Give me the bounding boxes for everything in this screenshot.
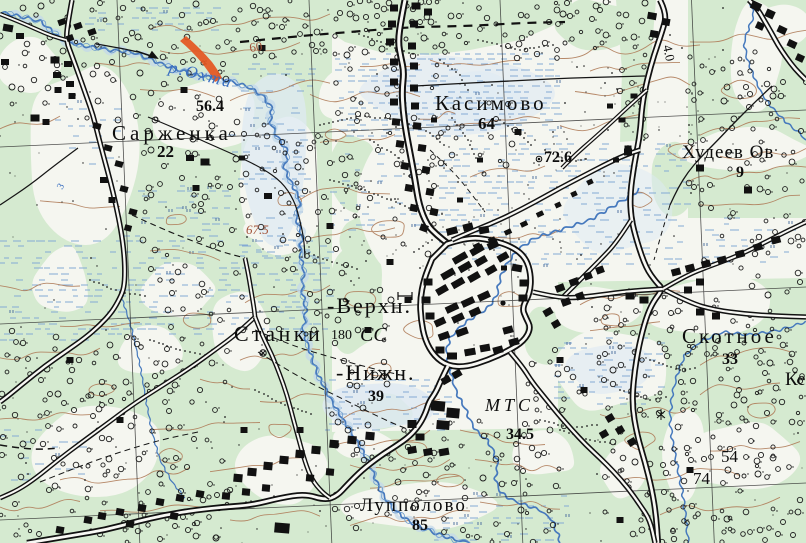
svg-text:64: 64 <box>478 114 496 133</box>
svg-text:Худеев Ов: Худеев Ов <box>682 142 774 163</box>
svg-text:-Верхн.: -Верхн. <box>327 293 412 318</box>
svg-text:85: 85 <box>412 517 428 534</box>
svg-text:МТС: МТС <box>484 395 534 415</box>
svg-text:Ке: Ке <box>785 369 805 390</box>
svg-text:67.5: 67.5 <box>246 222 269 237</box>
svg-text:Станки: Станки <box>234 321 323 346</box>
svg-text:54: 54 <box>721 447 739 466</box>
svg-text:33: 33 <box>722 351 738 368</box>
svg-text:60: 60 <box>248 38 263 55</box>
svg-text:Лупполово: Лупполово <box>360 495 467 516</box>
svg-text:Касимово: Касимово <box>435 91 547 115</box>
svg-text:9: 9 <box>736 164 744 181</box>
svg-text:56.4: 56.4 <box>196 98 224 115</box>
svg-text:-Нижн.: -Нижн. <box>336 360 415 385</box>
svg-text:72.6: 72.6 <box>544 149 572 166</box>
svg-text:Скотное: Скотное <box>682 324 777 348</box>
svg-text:34.5: 34.5 <box>506 426 534 443</box>
svg-text:22: 22 <box>157 142 174 161</box>
svg-text:180: 180 <box>331 328 352 343</box>
svg-text:СС: СС <box>360 324 387 346</box>
svg-text:39: 39 <box>368 388 384 405</box>
svg-text:74: 74 <box>693 469 711 488</box>
